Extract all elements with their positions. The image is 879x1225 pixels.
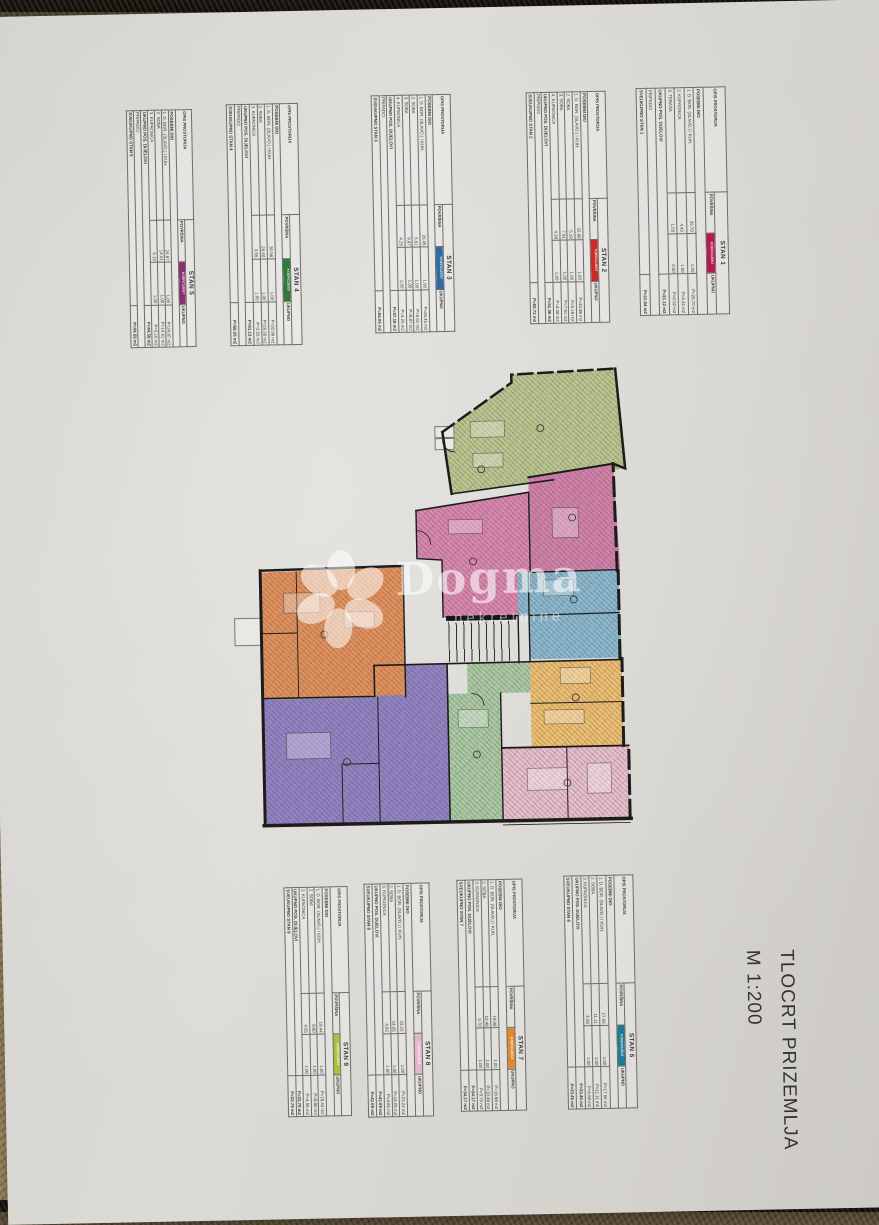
table-stan-3: OPIS PROSTORIJASTAN 3POVRŠINAKOEFICIJENT…	[371, 94, 456, 334]
apartment-name: STAN 1	[714, 192, 729, 314]
room-total: P=19.98 m2	[492, 1069, 501, 1111]
room-area: 5.10	[150, 220, 158, 263]
room-area: 33.88	[574, 199, 582, 240]
grand-total-value: P=68.26 m2	[230, 302, 239, 345]
room-total: P=4.25 m2	[398, 290, 407, 333]
room-area: 26.70	[686, 193, 696, 234]
apartment-table: OPIS PROSTORIJASTAN 8POVRŠINAKOEFICIJENT…	[363, 882, 434, 1117]
room-coefficient: 1.00	[476, 1028, 485, 1069]
subtotal-value: P=47.18 m2	[390, 290, 399, 333]
col-header-opis: OPIS PROSTORIJA	[703, 87, 727, 193]
grand-total-value: P=33.79 m2	[288, 1076, 296, 1117]
room-area: 30.98	[267, 215, 275, 258]
room-coefficient: 1.00	[268, 259, 276, 302]
room-coefficient: 1.00	[383, 1033, 392, 1075]
room-total: P=17.66 m2	[601, 1067, 610, 1109]
room-coefficient: 1.00	[677, 233, 687, 274]
room-coefficient: 1.00	[390, 1033, 399, 1075]
room-area: 9.80	[309, 993, 317, 1034]
room-total: P=9.80 m2	[311, 1075, 319, 1116]
room-area: 4.42	[676, 193, 686, 234]
table-stan-6: OPIS PROSTORIJASTAN 6POVRŠINAKOEFICIJENT…	[563, 874, 638, 1109]
room-total: P=3.70 m2	[476, 1069, 485, 1111]
table-stan-2: OPIS PROSTORIJASTAN 2POVRŠINAKOEFICIJENT…	[526, 91, 611, 325]
drawing-title: TLOCRT PRIZEMLJA M 1:200	[719, 949, 807, 1171]
room-area: 14.61	[157, 220, 165, 263]
col-header-ukupno: UKUPNO	[415, 1074, 423, 1116]
grand-total-value: P=31.64 m2	[640, 275, 650, 316]
apartment-color-swatch: KOEFICIJENT	[436, 247, 444, 290]
room-total: P=0.52 m2	[669, 274, 679, 315]
room-area: 3.55	[251, 216, 259, 259]
col-header-ukupno: UKUPNO	[591, 281, 599, 323]
col-header-povrsina: POVRŠINA	[590, 198, 598, 239]
col-header-povrsina: POVRŠINA	[413, 991, 421, 1033]
room-area: 4.68	[583, 984, 592, 1026]
subtotal-value: P=61.13 m2	[246, 302, 254, 345]
room-area: 4.25	[396, 205, 405, 248]
col-header-povrsina: POVRŠINA	[616, 983, 625, 1025]
room-area: 11.11	[591, 983, 600, 1025]
grand-total-value: P=42.09 m2	[368, 1075, 377, 1117]
col-header-povrsina: POVRŠINA	[178, 219, 186, 262]
room-coefficient: 1.00	[157, 262, 165, 305]
col-header-povrsina: POVRŠINA	[705, 192, 715, 233]
room-total: P=26.70 m2	[688, 274, 698, 315]
room-area: 4.38	[551, 199, 559, 240]
table-stan-1: OPIS PROSTORIJASTAN 1POVRŠINAKOEFICIJENT…	[636, 86, 731, 316]
room-total: P=26.60 m2	[261, 302, 269, 345]
room-area: 3.70	[475, 987, 484, 1028]
room-coefficient: 1.00	[584, 1025, 593, 1067]
col-header-opis: OPIS PROSTORIJA	[411, 883, 431, 991]
room-total: P=3.55 m2	[253, 302, 261, 345]
room-total: P=10.49 m2	[484, 1069, 493, 1111]
col-header-opis: OPIS PROSTORIJA	[587, 91, 607, 198]
floor-plan: Dogma nekretnine	[219, 366, 640, 844]
room-area: 4.82	[382, 992, 391, 1034]
col-header-povrsina: POVRŠINA	[506, 986, 514, 1027]
room-coefficient: 1.00	[567, 240, 575, 281]
col-header-ukupno: UKUPNO	[436, 289, 444, 332]
apartment-table: OPIS PROSTORIJASTAN 4POVRŠINAKOEFICIJENT…	[226, 103, 303, 346]
col-header-opis: OPIS PROSTORIJA	[175, 110, 193, 220]
grand-total-value: P=34.17 m2	[461, 1070, 470, 1112]
room-area: 4.55	[301, 993, 309, 1034]
apartment-color-swatch: KOEFICIJENT	[332, 1034, 340, 1075]
subtotal-value: P=34.17 m2	[469, 1070, 478, 1112]
room-coefficient: 1.00	[560, 240, 568, 281]
apartment-color-swatch: KOEFICIJENT	[706, 233, 716, 274]
room-area: 6.61	[412, 205, 421, 248]
room-coefficient: 1.00	[575, 240, 583, 281]
title-line-2: M 1:200	[742, 950, 765, 1026]
room-total: P=4.42 m2	[678, 274, 688, 315]
room-total: P=5.19 m2	[568, 281, 576, 323]
walls-overlay	[219, 366, 640, 844]
room-area: 19.98	[490, 986, 499, 1027]
room-total: P=24.87 m2	[165, 304, 173, 347]
grand-total-value: P=44.58 m2	[130, 305, 138, 348]
room-total: P=4.68 m2	[584, 1067, 593, 1109]
room-coefficient: 1.00	[483, 1028, 492, 1069]
room-coefficient: 1.00	[317, 1034, 325, 1075]
col-header-ukupno: UKUPNO	[707, 273, 717, 314]
subtotal-value: P=33.45 m2	[576, 1067, 585, 1109]
apartment-table: OPIS PROSTORIJASTAN 6POVRŠINAKOEFICIJENT…	[563, 874, 638, 1109]
apartment-color-swatch: KOEFICIJENT	[507, 1028, 515, 1069]
room-area: 7.91	[559, 199, 567, 240]
room-total: P=7.91 m2	[561, 282, 569, 324]
room-coefficient: 1.00	[164, 262, 172, 305]
room-area: 24.87	[164, 220, 172, 263]
room-area: 26.60	[259, 215, 267, 258]
room-total: P=14.05 m2	[391, 1075, 400, 1117]
room-total: P=30.98 m2	[268, 302, 276, 345]
room-area: 23.22	[397, 991, 406, 1033]
room-area: 19.44	[317, 993, 325, 1034]
col-header-opis: OPIS PROSTORIJA	[330, 887, 350, 993]
grand-total-value: P=60.72 m2	[530, 282, 539, 324]
apartment-table: OPIS PROSTORIJASTAN 1POVRŠINAKOEFICIJENT…	[636, 86, 731, 316]
room-total: P=26.45 m2	[421, 289, 430, 332]
room-coefficient: 1.00	[592, 1025, 601, 1067]
subtotal-value: P=42.09 m2	[376, 1075, 385, 1117]
room-area: 14.05	[390, 991, 399, 1033]
room-area: 9.87	[404, 205, 413, 248]
room-coefficient: 1.00	[310, 1034, 318, 1075]
room-coefficient: 1.00	[397, 247, 406, 290]
table-stan-7: OPIS PROSTORIJASTAN 7POVRŠINAKOEFICIJENT…	[456, 879, 527, 1112]
room-total: P=33.88 m2	[576, 281, 584, 323]
apartment-color-swatch: KOEFICIJENT	[414, 1033, 422, 1075]
room-total: P=4.82 m2	[383, 1075, 392, 1117]
room-coefficient: 1.00	[302, 1034, 310, 1075]
subtotal-value: P=51.36 m2	[545, 282, 553, 324]
apartment-table: OPIS PROSTORIJASTAN 7POVRŠINAKOEFICIJENT…	[456, 879, 527, 1112]
col-header-opis: OPIS PROSTORIJA	[432, 94, 452, 204]
grand-total-value: P=55.05 m2	[375, 290, 384, 333]
room-total: P=9.87 m2	[406, 290, 415, 333]
room-area: 17.66	[599, 983, 608, 1025]
apartment-color-swatch: KOEFICIJENT	[617, 1025, 626, 1067]
title-line-1: TLOCRT PRIZEMLJA	[776, 949, 801, 1151]
apartment-table: OPIS PROSTORIJASTAN 3POVRŠINAKOEFICIJENT…	[371, 94, 456, 334]
col-header-ukupno: UKUPNO	[508, 1069, 516, 1111]
apartment-color-swatch: KOEFICIJENT	[590, 240, 598, 281]
apartment-color-swatch: KOEFICIJENT	[178, 262, 186, 305]
paper-sheet: OPIS PROSTORIJASTAN 5POVRŠINAKOEFICIJENT…	[0, 0, 879, 1225]
room-total: P=11.11 m2	[593, 1067, 602, 1109]
table-stan-8: OPIS PROSTORIJASTAN 8POVRŠINAKOEFICIJENT…	[363, 882, 434, 1117]
room-area: 5.19	[567, 199, 575, 240]
col-header-povrsina: POVRŠINA	[435, 204, 443, 247]
room-coefficient: 1.00	[405, 247, 414, 290]
col-header-ukupno: UKUPNO	[179, 304, 187, 347]
col-header-ukupno: UKUPNO	[618, 1066, 627, 1108]
room-coefficient: 1.00	[600, 1025, 609, 1067]
table-stan-5: OPIS PROSTORIJASTAN 5POVRŠINAKOEFICIJENT…	[126, 109, 197, 348]
room-coefficient: 1.00	[150, 262, 158, 305]
col-header-povrsina: POVRŠINA	[282, 215, 290, 258]
room-coefficient: 1.00	[552, 240, 560, 281]
room-total: P=19.44 m2	[318, 1075, 326, 1116]
apartment-table: OPIS PROSTORIJASTAN 5POVRŠINAKOEFICIJENT…	[126, 109, 197, 348]
room-total: P=14.61 m2	[158, 305, 166, 348]
room-coefficient: 1.00	[260, 259, 268, 302]
room-area: 10.49	[483, 987, 492, 1028]
room-total: P=5.10 m2	[151, 305, 159, 348]
grand-total-value: P=33.45 m2	[568, 1067, 577, 1109]
room-area: 1.03	[667, 193, 677, 234]
subtotal-value: P=44.58 m2	[144, 305, 152, 348]
room-total: P=4.55 m2	[303, 1075, 311, 1116]
photo-of-floorplan-document: { "document": { "title_line1": "TLOCRT P…	[0, 0, 879, 1200]
table-stan-9: OPIS PROSTORIJASTAN 9POVRŠINAKOEFICIJENT…	[283, 886, 352, 1117]
room-coefficient: 1.00	[398, 1033, 407, 1075]
apartment-table: OPIS PROSTORIJASTAN 2POVRŠINAKOEFICIJENT…	[526, 91, 611, 325]
col-header-opis: OPIS PROSTORIJA	[504, 879, 524, 986]
room-coefficient: 1.00	[420, 247, 429, 290]
room-coefficient: 1.00	[687, 233, 697, 274]
room-coefficient: 1.00	[491, 1028, 500, 1069]
room-area: 26.45	[419, 204, 428, 247]
apartment-color-swatch: KOEFICIJENT	[283, 258, 291, 301]
room-coefficient: 1.00	[252, 259, 260, 302]
subtotal-value: P=31.12 m2	[659, 274, 669, 315]
table-stan-4: OPIS PROSTORIJASTAN 4POVRŠINAKOEFICIJENT…	[226, 103, 303, 346]
col-header-ukupno: UKUPNO	[284, 301, 292, 344]
col-header-opis: OPIS PROSTORIJA	[280, 103, 300, 215]
room-coefficient: 0.50	[668, 234, 678, 275]
col-header-povrsina: POVRŠINA	[332, 993, 340, 1034]
subtotal-value: P=33.79 m2	[295, 1075, 303, 1116]
room-total: P=4.38 m2	[553, 282, 561, 324]
room-total: P=23.22 m2	[399, 1075, 408, 1117]
room-coefficient: 1.00	[413, 247, 422, 290]
room-total: P=6.61 m2	[413, 290, 422, 333]
col-header-opis: OPIS PROSTORIJA	[614, 875, 635, 983]
col-header-ukupno: UKUPNO	[333, 1075, 341, 1116]
apartment-table: OPIS PROSTORIJASTAN 9POVRŠINAKOEFICIJENT…	[283, 886, 352, 1117]
